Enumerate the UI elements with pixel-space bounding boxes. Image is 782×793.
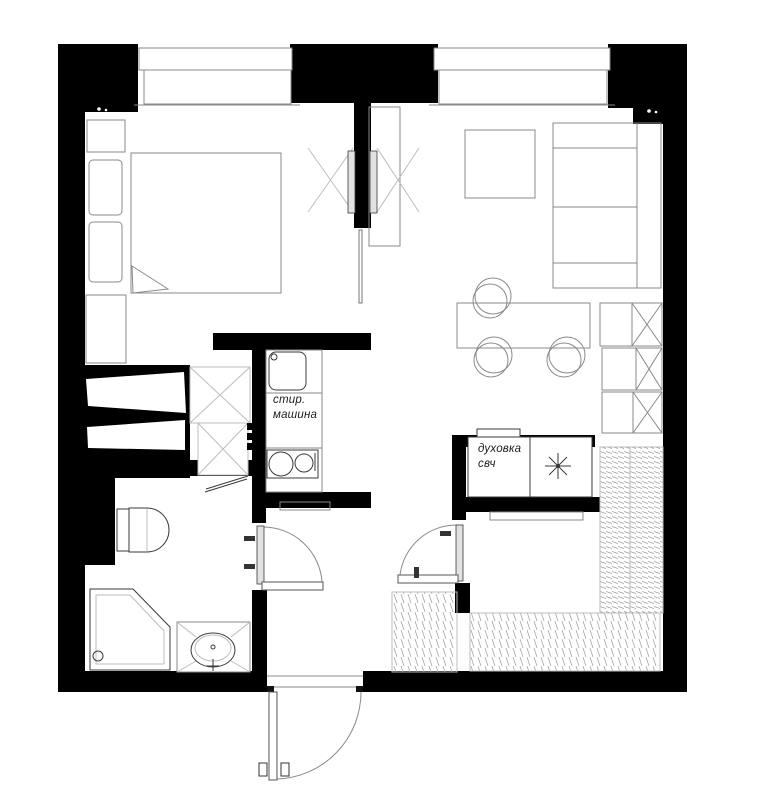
washing-machine-label-line1: стир. — [273, 394, 305, 406]
living-window — [429, 48, 615, 105]
dining-chair — [474, 337, 512, 377]
hall-wardrobe-upper — [190, 367, 250, 423]
bed — [131, 153, 281, 293]
wall-dots — [97, 107, 657, 113]
closet-rug — [470, 613, 660, 671]
tv-table — [465, 130, 535, 198]
dresser — [86, 295, 126, 363]
oven-microwave-label-line2: свч — [478, 458, 496, 470]
closet-door — [398, 525, 463, 583]
oven-microwave-label: духовка свч — [478, 442, 521, 472]
closet-shelf — [490, 512, 583, 520]
dining-table — [457, 303, 590, 348]
toilet — [117, 508, 169, 552]
dining-chair — [547, 337, 585, 377]
sliding-door — [359, 230, 362, 303]
floor-plan: стир. машина духовка свч — [0, 0, 782, 793]
entrance-door — [259, 671, 363, 780]
hinge-nubs — [247, 423, 253, 450]
bathroom-vanity — [177, 622, 250, 672]
wardrobe-door-open — [205, 476, 248, 492]
closet-rail — [600, 447, 663, 613]
sofa — [553, 123, 661, 288]
storage-column — [600, 303, 662, 433]
shower — [90, 589, 170, 670]
bedroom-window — [134, 48, 300, 105]
hall-wardrobe-lower — [198, 423, 248, 475]
bed-pillows — [89, 160, 122, 282]
washing-machine-label-line2: машина — [273, 409, 317, 421]
oven-microwave-label-line1: духовка — [478, 443, 521, 455]
walls — [58, 44, 687, 692]
entrance-rug — [392, 592, 457, 672]
bathroom-door — [244, 526, 323, 590]
dining-chair — [473, 278, 511, 318]
nightstand — [87, 120, 125, 152]
wardrobe-cross-left — [308, 148, 353, 212]
washing-machine-label: стир. машина — [273, 393, 317, 423]
wardrobe-cross-right — [377, 148, 419, 212]
